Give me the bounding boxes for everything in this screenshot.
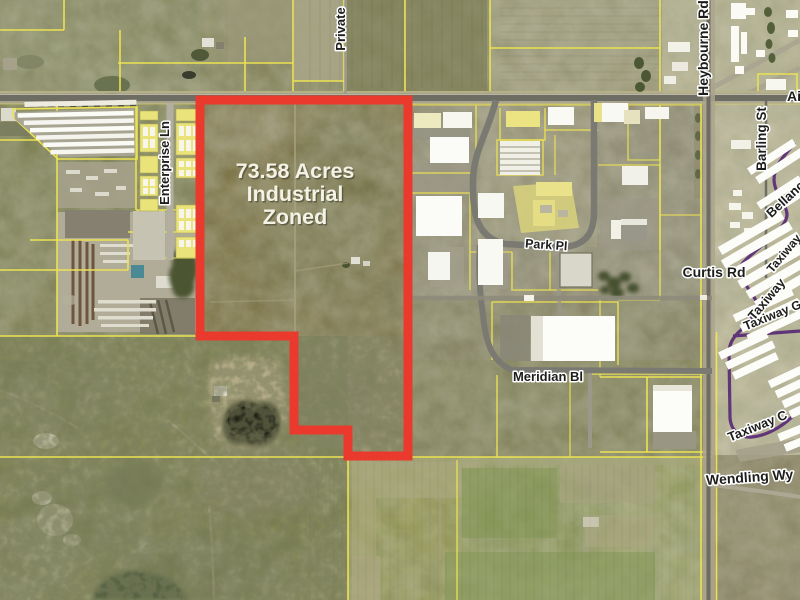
svg-text:Zoned: Zoned <box>263 205 328 229</box>
svg-text:Curtis Rd: Curtis Rd <box>683 264 746 280</box>
svg-text:Enterprise Ln: Enterprise Ln <box>157 121 172 205</box>
svg-text:Park Pl: Park Pl <box>525 237 568 254</box>
svg-text:Barling St: Barling St <box>754 107 769 171</box>
svg-text:73.58 Acres: 73.58 Acres <box>236 159 355 183</box>
svg-text:Heybourne Rd: Heybourne Rd <box>695 0 711 96</box>
svg-text:Private: Private <box>333 7 348 50</box>
svg-text:Airp: Airp <box>787 88 800 104</box>
svg-text:Meridian Bl: Meridian Bl <box>513 369 583 384</box>
svg-text:Industrial: Industrial <box>247 182 344 206</box>
